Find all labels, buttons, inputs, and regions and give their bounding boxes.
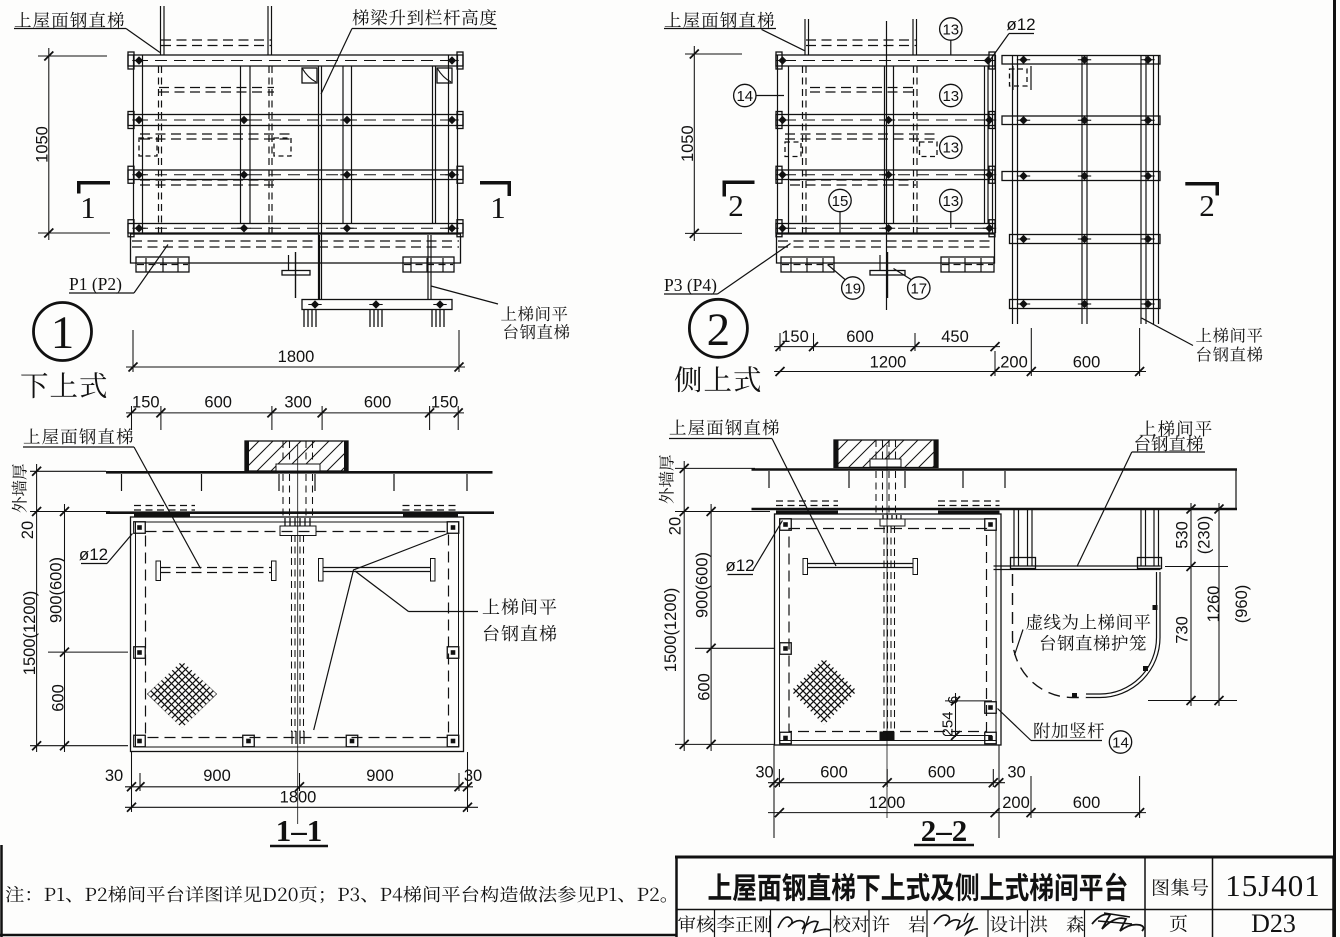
svg-text:13: 13 (942, 21, 959, 38)
svg-text:200: 200 (1002, 794, 1030, 812)
svg-text:600: 600 (928, 764, 956, 782)
svg-text:6: 6 (945, 696, 962, 704)
svg-text:900: 900 (203, 767, 231, 785)
svg-text:1: 1 (51, 307, 75, 359)
svg-text:900: 900 (366, 767, 394, 785)
svg-text:900(600): 900(600) (694, 552, 712, 618)
svg-text:P1 (P2): P1 (P2) (69, 274, 122, 294)
svg-text:1200: 1200 (869, 794, 906, 812)
svg-text:13: 13 (942, 88, 959, 105)
svg-text:14: 14 (736, 88, 753, 105)
svg-text:ø12: ø12 (79, 545, 108, 564)
svg-text:150: 150 (132, 394, 160, 412)
svg-text:730: 730 (1174, 616, 1192, 644)
svg-text:30: 30 (1007, 764, 1025, 782)
svg-text:600: 600 (696, 673, 714, 701)
svg-text:(960): (960) (1233, 585, 1251, 624)
svg-text:1: 1 (490, 190, 506, 225)
svg-text:1050: 1050 (34, 126, 52, 163)
svg-text:300: 300 (284, 394, 312, 412)
svg-text:1260: 1260 (1205, 586, 1223, 623)
svg-text:1500(1200): 1500(1200) (21, 591, 39, 675)
svg-text:ø12: ø12 (725, 556, 754, 575)
svg-text:150: 150 (781, 328, 809, 346)
svg-text:600: 600 (1073, 794, 1101, 812)
svg-text:30: 30 (464, 767, 482, 785)
svg-text:1–1: 1–1 (276, 813, 323, 848)
svg-text:17: 17 (910, 280, 927, 297)
svg-text:600: 600 (1073, 354, 1101, 372)
svg-text:1800: 1800 (280, 789, 317, 807)
svg-text:30: 30 (755, 764, 773, 782)
svg-text:900(600): 900(600) (48, 557, 66, 623)
svg-text:200: 200 (1000, 354, 1028, 372)
svg-text:2: 2 (707, 304, 731, 356)
svg-text:D23: D23 (1251, 909, 1296, 937)
svg-text:1500(1200): 1500(1200) (662, 588, 680, 672)
svg-text:600: 600 (846, 328, 874, 346)
svg-text:600: 600 (364, 394, 392, 412)
svg-text:450: 450 (941, 328, 969, 346)
svg-text:13: 13 (942, 140, 959, 157)
svg-text:1200: 1200 (870, 354, 907, 372)
svg-text:1800: 1800 (278, 348, 315, 366)
svg-text:600: 600 (820, 764, 848, 782)
svg-text:30: 30 (105, 767, 123, 785)
svg-text:1: 1 (80, 190, 96, 225)
svg-text:2: 2 (1199, 188, 1215, 223)
svg-text:2–2: 2–2 (921, 813, 968, 848)
svg-text:2: 2 (728, 188, 744, 223)
svg-text:20: 20 (667, 517, 685, 535)
svg-text:P3 (P4): P3 (P4) (664, 275, 717, 295)
svg-text:13: 13 (942, 193, 959, 210)
svg-text:20: 20 (19, 521, 37, 539)
svg-text:1050: 1050 (679, 125, 697, 162)
svg-text:15J401: 15J401 (1225, 868, 1321, 903)
svg-text:150: 150 (431, 394, 459, 412)
svg-text:254: 254 (940, 711, 957, 736)
svg-text:600: 600 (204, 394, 232, 412)
svg-text:530: 530 (1174, 521, 1192, 549)
svg-text:600: 600 (50, 684, 68, 712)
svg-text:14: 14 (1112, 734, 1129, 751)
svg-text:15: 15 (832, 193, 849, 210)
svg-text:ø12: ø12 (1006, 15, 1035, 34)
svg-text:19: 19 (844, 280, 861, 297)
svg-text:(230): (230) (1196, 516, 1214, 555)
